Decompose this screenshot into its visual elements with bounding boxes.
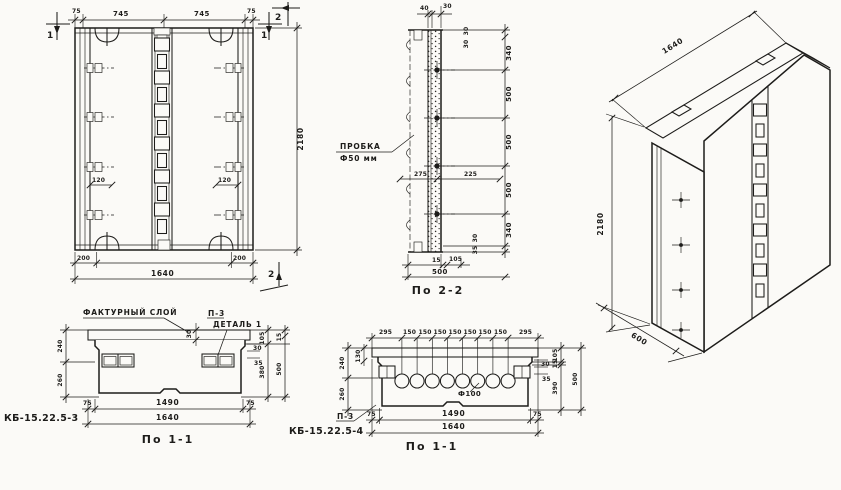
dim-left-0: 130 xyxy=(355,349,362,362)
dim-right-c: 390 xyxy=(552,381,559,394)
dim-right-b: 15 xyxy=(552,360,559,369)
dim-bot-edge-r: 75 xyxy=(246,400,255,407)
dim-span-left: 745 xyxy=(113,10,129,18)
dim-top-edge-r: 295 xyxy=(519,329,532,336)
p3-label: П-3 xyxy=(337,412,354,421)
facing-layer-section xyxy=(428,30,441,252)
iso-main-face xyxy=(704,55,830,352)
panel-mark-kb4: КБ-15.22.5-4 xyxy=(289,426,364,437)
dim-top-step: 150 xyxy=(434,329,447,336)
dim-top-step: 150 xyxy=(419,329,432,336)
dim-anchor-left: 120 xyxy=(92,177,105,184)
dim-left-a: 240 xyxy=(57,339,64,352)
dim-top-edge-l: 295 xyxy=(379,329,392,336)
dim-sec22-v1: 340 xyxy=(505,45,513,61)
dim-top-step: 150 xyxy=(479,329,492,336)
sec22-bottom-dims: 15 105 500 xyxy=(402,254,510,280)
panel-mark-kb3: КБ-15.22.5-3 xyxy=(4,413,79,424)
dim-step-a: 30 xyxy=(253,345,262,352)
texture-layer-label: ФАКТУРНЫЙ СЛОЙ xyxy=(83,308,177,317)
lifting-notch xyxy=(672,105,691,116)
dim-edge-right: 75 xyxy=(247,8,256,15)
dim-front-height: 2180 xyxy=(296,127,305,150)
section-2-2-view: ПРОБКА Ф50 мм 40 30 30 30 340 500 500 50… xyxy=(336,3,513,297)
dim-sec22-side-bot-a: 30 xyxy=(472,234,479,243)
dim-anchor-right: 120 xyxy=(218,177,231,184)
dim-bot-span: 1490 xyxy=(156,398,179,407)
dim-bot-total: 1640 xyxy=(442,422,465,431)
dim-right-out-b: 500 xyxy=(276,362,283,375)
dim-sec22-v5: 340 xyxy=(505,222,513,238)
dim-right-in-a: 105 xyxy=(259,331,266,344)
dim-sec22-v2: 500 xyxy=(505,86,513,102)
front-view: 120 120 75 745 745 75 200 200 1640 xyxy=(46,2,305,291)
sec22-caption: По 2-2 xyxy=(412,284,464,297)
dim-left-b: 260 xyxy=(339,387,346,400)
sec11a-bottom-dims: 75 1490 75 1640 xyxy=(82,398,256,428)
dim-sec22-side-top-b: 30 xyxy=(463,40,470,49)
section-mark-2-bottom: 2 xyxy=(268,270,274,280)
circular-voids xyxy=(395,374,515,388)
dim-sec22-bot-a: 15 xyxy=(432,257,441,264)
sec11a-right-dims: 105 380 15 500 xyxy=(241,325,290,402)
dim-span-right: 745 xyxy=(194,10,210,18)
isometric-view: 1640 2180 600 xyxy=(596,11,830,362)
sec11a-left-dims: 240 260 xyxy=(57,324,99,403)
dim-sec22-side-bot-b: 35 xyxy=(472,246,479,255)
section-mark-1-left: 1 xyxy=(47,31,53,41)
dim-plug-front: 275 xyxy=(414,171,427,178)
front-bottom-dims: 200 200 1640 xyxy=(70,252,258,284)
dim-bot-edge-l: 75 xyxy=(83,400,92,407)
dim-sec22-top-a: 40 xyxy=(420,5,429,12)
dim-bot-span: 1490 xyxy=(442,409,465,418)
p3-label: П-3 xyxy=(208,309,225,318)
dim-top-step: 150 xyxy=(494,329,507,336)
dim-top-step: 150 xyxy=(403,329,416,336)
sec22-top-dims: 40 30 xyxy=(417,3,452,28)
dim-left-a: 240 xyxy=(339,356,346,369)
step-dims: 30 35 xyxy=(247,344,263,367)
facing-layer xyxy=(88,330,250,340)
front-top-dims: 75 745 745 75 xyxy=(68,8,260,28)
dim-top-step: 150 xyxy=(464,329,477,336)
dim-bot-edge-r: 75 xyxy=(533,411,542,418)
step-dims: 30 35 xyxy=(534,360,551,383)
dim-top-step: 150 xyxy=(449,329,462,336)
dim-plug-back: 225 xyxy=(464,171,477,178)
dim-facing: 30 xyxy=(186,330,193,339)
section-1-1-kb4-view: 295 150 150 150 150 150 150 150 295 Ф100… xyxy=(289,329,586,453)
dim-sec22-depth: 500 xyxy=(432,268,448,276)
dim-iso-width: 1640 xyxy=(660,36,685,56)
dim-iso-height: 2180 xyxy=(596,212,605,235)
dim-sec22-v4: 500 xyxy=(505,182,513,198)
dim-bot-edge-l: 75 xyxy=(367,411,376,418)
dim-right-in-b: 380 xyxy=(259,365,266,378)
dim-bot-total: 1640 xyxy=(156,413,179,422)
section-mark-1-right: 1 xyxy=(261,31,267,41)
plug-label-line1: ПРОБКА xyxy=(340,142,381,151)
hole-diameter-label: Ф100 xyxy=(458,390,481,398)
front-height-dim: 2180 xyxy=(255,22,305,256)
dim-sec22-v3: 500 xyxy=(505,134,513,150)
dim-sec22-bot-b: 105 xyxy=(449,256,462,263)
panel-drawing-sheet: 120 120 75 745 745 75 200 200 1640 xyxy=(0,0,841,490)
section-mark-2-top: 2 xyxy=(275,13,281,23)
dim-sec22-top-b: 30 xyxy=(443,3,452,10)
dim-edge-left: 75 xyxy=(72,8,81,15)
section-1-1-kb3-view: 30 30 35 240 260 105 380 15 500 xyxy=(4,308,290,446)
dim-sec22-side-top-a: 30 xyxy=(463,27,470,36)
dim-step-b: 35 xyxy=(542,376,551,383)
plug-label-line2: Ф50 мм xyxy=(340,154,378,163)
dim-right-a: 105 xyxy=(552,348,559,361)
keyway-profile-edge xyxy=(407,30,411,252)
dim-front-width: 1640 xyxy=(151,269,174,278)
dim-right-out-a: 15 xyxy=(276,333,283,342)
plug-callout: ПРОБКА Ф50 мм xyxy=(336,135,414,163)
sec11b-caption: По 1-1 xyxy=(406,440,458,453)
dim-loop-off-right: 200 xyxy=(233,255,246,262)
iso-side-face xyxy=(652,143,704,352)
sec11b-right-dims: 105 15 390 500 xyxy=(528,342,586,416)
detail-label: ДЕТАЛЬ 1 xyxy=(213,320,262,329)
sec11a-caption: По 1-1 xyxy=(142,433,194,446)
sec22-plug-dims: 275 225 xyxy=(397,171,503,182)
dim-loop-off-left: 200 xyxy=(77,255,90,262)
lifting-notch xyxy=(756,54,775,65)
dim-left-b: 260 xyxy=(57,373,64,386)
dim-right-d: 500 xyxy=(572,372,579,385)
facing-layer xyxy=(372,348,538,357)
sec22-right-dims: 30 30 340 500 500 500 340 30 35 xyxy=(443,24,513,258)
